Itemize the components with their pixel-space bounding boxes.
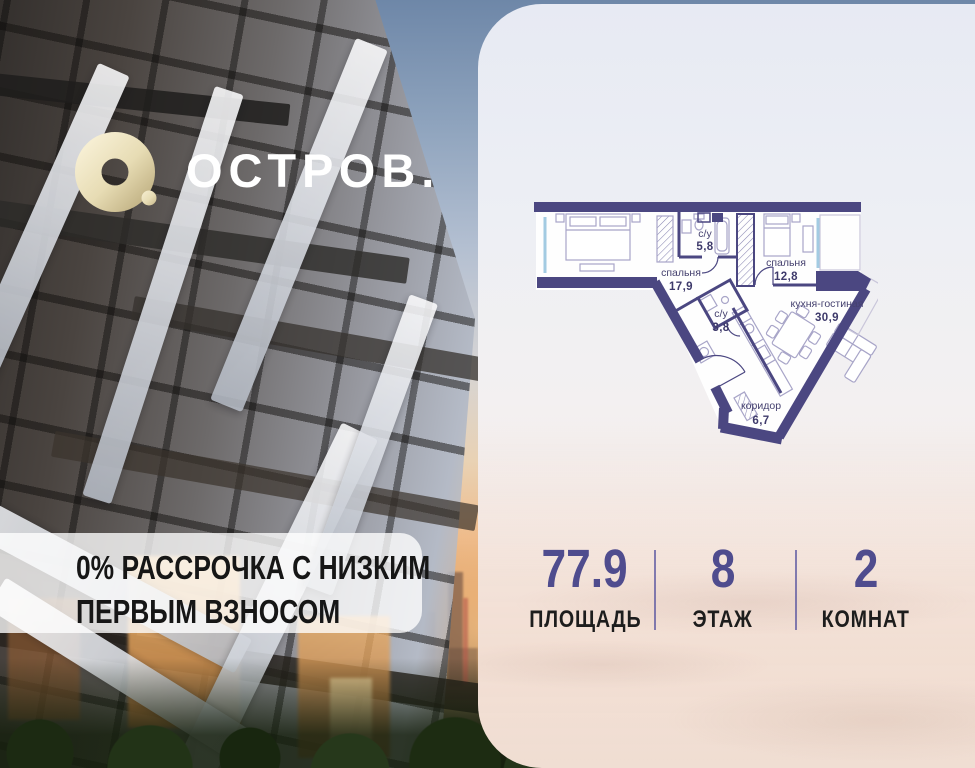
stat-area-value: 77.9 (542, 542, 628, 596)
room-bath1-area: 5,8 (696, 241, 713, 253)
stat-area: 77.9 ПЛОЩАДЬ (505, 542, 665, 634)
info-card: спальня 17,9 с/у 5,8 спальня 12,8 кухня-… (478, 4, 975, 768)
stat-floor-value: 8 (711, 542, 736, 596)
room-bedroom1-area: 17,9 (669, 281, 693, 293)
promo-line1: 0% РАССРОЧКА С НИЗКИМ (76, 546, 430, 590)
room-bath1-name: с/у (698, 228, 712, 240)
stat-rooms: 2 КОМНАТ (793, 542, 939, 634)
room-bedroom2-name: спальня (766, 257, 806, 269)
room-corridor-name: коридор (741, 400, 781, 412)
room-kitchen-area: 30,9 (815, 312, 839, 324)
room-bedroom2-area: 12,8 (774, 271, 798, 283)
stat-rooms-label: КОМНАТ (822, 606, 910, 634)
stat-floor: 8 ЭТАЖ (650, 542, 796, 634)
room-corridor-area: 6,7 (752, 415, 769, 427)
floorplan: спальня 17,9 с/у 5,8 спальня 12,8 кухня-… (528, 194, 878, 456)
stat-area-label: ПЛОЩАДЬ (529, 606, 641, 634)
room-bath2-area: 3,8 (712, 322, 729, 334)
ad-creative: ОСТРОВ. 0% РАССРОЧКА С НИЗКИМ ПЕРВЫМ ВЗН… (0, 0, 975, 768)
logo-text: ОСТРОВ. (186, 143, 440, 198)
promo-line2: ПЕРВЫМ ВЗНОСОМ (76, 590, 340, 634)
room-bath2-name: с/у (714, 308, 728, 320)
room-bedroom1-name: спальня (661, 267, 701, 279)
stat-floor-label: ЭТАЖ (693, 606, 753, 634)
stat-rooms-value: 2 (854, 542, 879, 596)
promo-banner: 0% РАССРОЧКА С НИЗКИМ ПЕРВЫМ ВЗНОСОМ (0, 533, 422, 633)
promo-text: 0% РАССРОЧКА С НИЗКИМ ПЕРВЫМ ВЗНОСОМ (76, 546, 519, 634)
room-kitchen-name: кухня-гостиная (791, 298, 864, 310)
